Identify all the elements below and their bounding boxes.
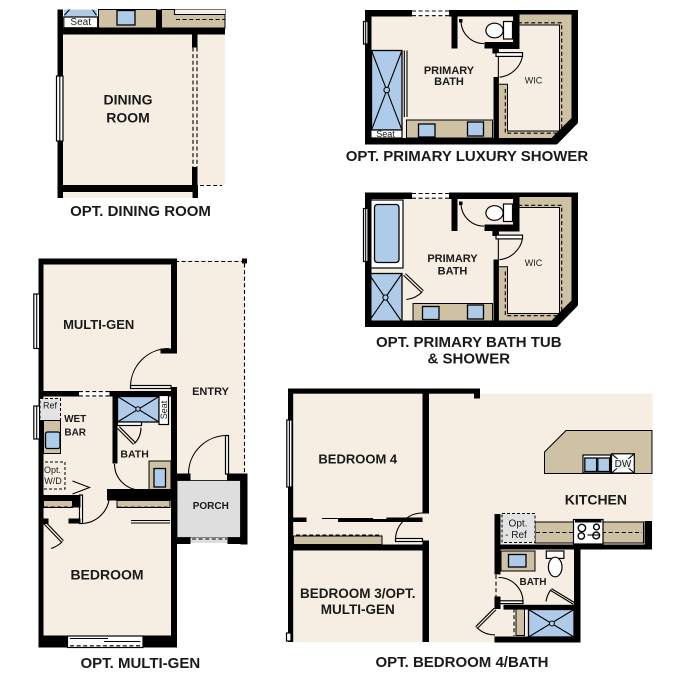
svg-text:& SHOWER: & SHOWER xyxy=(428,351,511,368)
svg-text:OPT. MULTI-GEN: OPT. MULTI-GEN xyxy=(80,655,200,672)
svg-text:DW: DW xyxy=(615,459,632,470)
svg-text:ENTRY: ENTRY xyxy=(192,386,230,398)
svg-text:PORCH: PORCH xyxy=(193,501,229,512)
svg-text:BATH: BATH xyxy=(438,266,468,278)
svg-text:WIC: WIC xyxy=(525,76,543,86)
svg-text:OPT. BEDROOM 4/BATH: OPT. BEDROOM 4/BATH xyxy=(375,654,548,671)
svg-text:MULTI-GEN: MULTI-GEN xyxy=(321,602,395,617)
svg-text:ROOM: ROOM xyxy=(106,110,150,126)
svg-text:OPT. PRIMARY BATH TUB: OPT. PRIMARY BATH TUB xyxy=(376,334,562,351)
svg-text:BEDROOM: BEDROOM xyxy=(70,567,143,583)
svg-text:BEDROOM 4: BEDROOM 4 xyxy=(318,451,398,466)
svg-text:BATH: BATH xyxy=(434,76,464,88)
svg-text:WET: WET xyxy=(64,414,86,425)
svg-text:Opt.: Opt. xyxy=(44,465,61,475)
svg-text:PRIMARY: PRIMARY xyxy=(427,253,478,265)
svg-text:OPT. PRIMARY LUXURY SHOWER: OPT. PRIMARY LUXURY SHOWER xyxy=(346,148,589,165)
svg-text:W/D: W/D xyxy=(44,476,62,486)
svg-text:BATH: BATH xyxy=(120,448,148,460)
svg-text:KITCHEN: KITCHEN xyxy=(565,492,627,508)
svg-text:BATH: BATH xyxy=(519,577,546,588)
svg-text:OPT. DINING ROOM: OPT. DINING ROOM xyxy=(70,203,211,220)
svg-text:Ref: Ref xyxy=(43,401,58,411)
svg-text:MULTI-GEN: MULTI-GEN xyxy=(63,317,134,332)
svg-text:BAR: BAR xyxy=(64,428,86,439)
svg-text:WIC: WIC xyxy=(525,258,543,268)
svg-text:Seat: Seat xyxy=(159,400,169,419)
svg-text:BEDROOM 3/OPT.: BEDROOM 3/OPT. xyxy=(300,586,416,601)
svg-text:Seat: Seat xyxy=(376,129,395,139)
svg-text:Opt.: Opt. xyxy=(509,519,528,530)
svg-text:DINING: DINING xyxy=(104,92,153,108)
svg-text:Seat: Seat xyxy=(70,17,91,28)
svg-text:- Ref: - Ref xyxy=(505,530,527,541)
